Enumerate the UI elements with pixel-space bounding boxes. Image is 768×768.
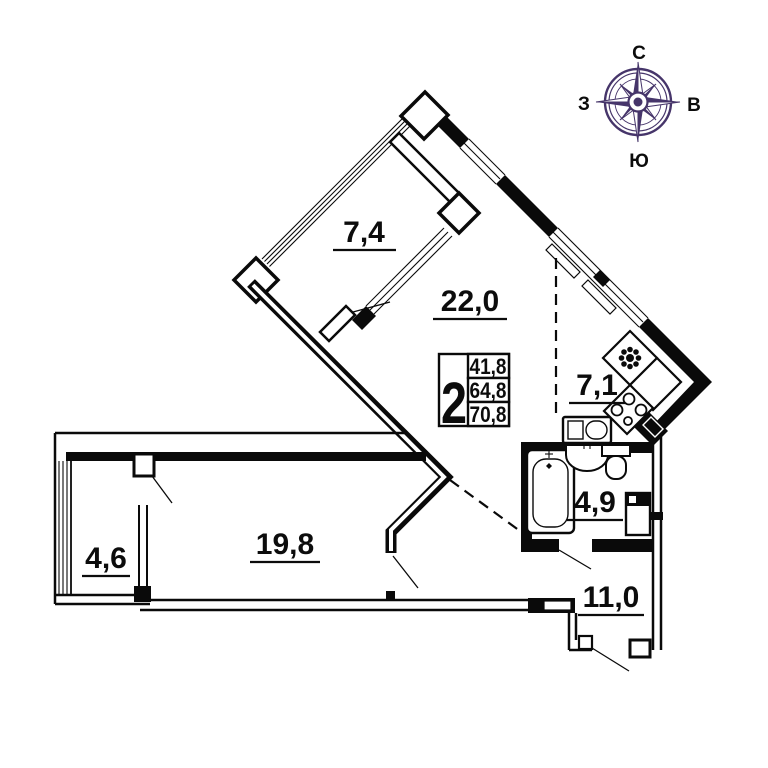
compass-label-north: С	[632, 43, 646, 64]
washer-detail	[568, 421, 583, 439]
duct-detail	[629, 496, 636, 503]
label-bedroom: 19,8	[256, 528, 314, 561]
bathtub-icon	[527, 450, 574, 533]
pier-detail	[544, 601, 571, 610]
partition-pier	[134, 454, 154, 476]
summary-usable-area: 64,8	[470, 378, 507, 403]
bathroom-wall	[592, 539, 653, 552]
label-hallway: 11,0	[583, 581, 640, 614]
entrance-pier	[630, 640, 650, 657]
partition-pier	[134, 586, 151, 602]
compass-label-east: В	[687, 95, 701, 116]
wall-band	[66, 452, 426, 461]
summary-living-area: 41,8	[470, 354, 507, 379]
summary-total-area: 70,8	[470, 402, 507, 427]
label-balcony-left: 4,6	[85, 542, 127, 575]
sink-petal	[619, 355, 625, 361]
toilet-bowl	[606, 456, 626, 479]
sink-flower-center	[626, 354, 634, 362]
wall-tick	[386, 591, 395, 600]
tub-inner	[533, 459, 568, 527]
label-bathroom: 4,9	[574, 486, 616, 519]
summary-room-count: 2	[441, 371, 467, 436]
sink-petal	[633, 361, 639, 367]
toilet-tank	[602, 445, 630, 456]
sink-petal	[627, 364, 633, 370]
washing-machine-icon	[563, 417, 611, 443]
bathroom-wall	[521, 539, 559, 552]
sink-petal	[633, 349, 639, 355]
floor-plan-page: 2 41,8 64,8 70,8 7,4 22,0 7,1 4,9 11,0 1…	[0, 0, 768, 768]
vent-duct	[626, 493, 650, 535]
floor-plan-drawing: 2 41,8 64,8 70,8 7,4 22,0 7,1 4,9 11,0 1…	[0, 0, 768, 768]
sink-petal	[636, 355, 642, 361]
summary-box: 2 41,8 64,8 70,8	[439, 354, 509, 436]
compass-label-south: Ю	[629, 151, 649, 172]
toilet-icon	[602, 445, 630, 479]
washer-drum	[586, 421, 607, 439]
sink-petal	[621, 361, 627, 367]
compass-hub-center	[634, 98, 643, 107]
door-jamb	[579, 636, 592, 649]
label-kitchen: 7,1	[576, 369, 618, 402]
compass-label-west: З	[578, 94, 590, 115]
label-living-room: 22,0	[441, 285, 499, 318]
label-balcony-top: 7,4	[343, 216, 385, 249]
sink-petal	[627, 347, 633, 353]
sink-petal	[621, 349, 627, 355]
